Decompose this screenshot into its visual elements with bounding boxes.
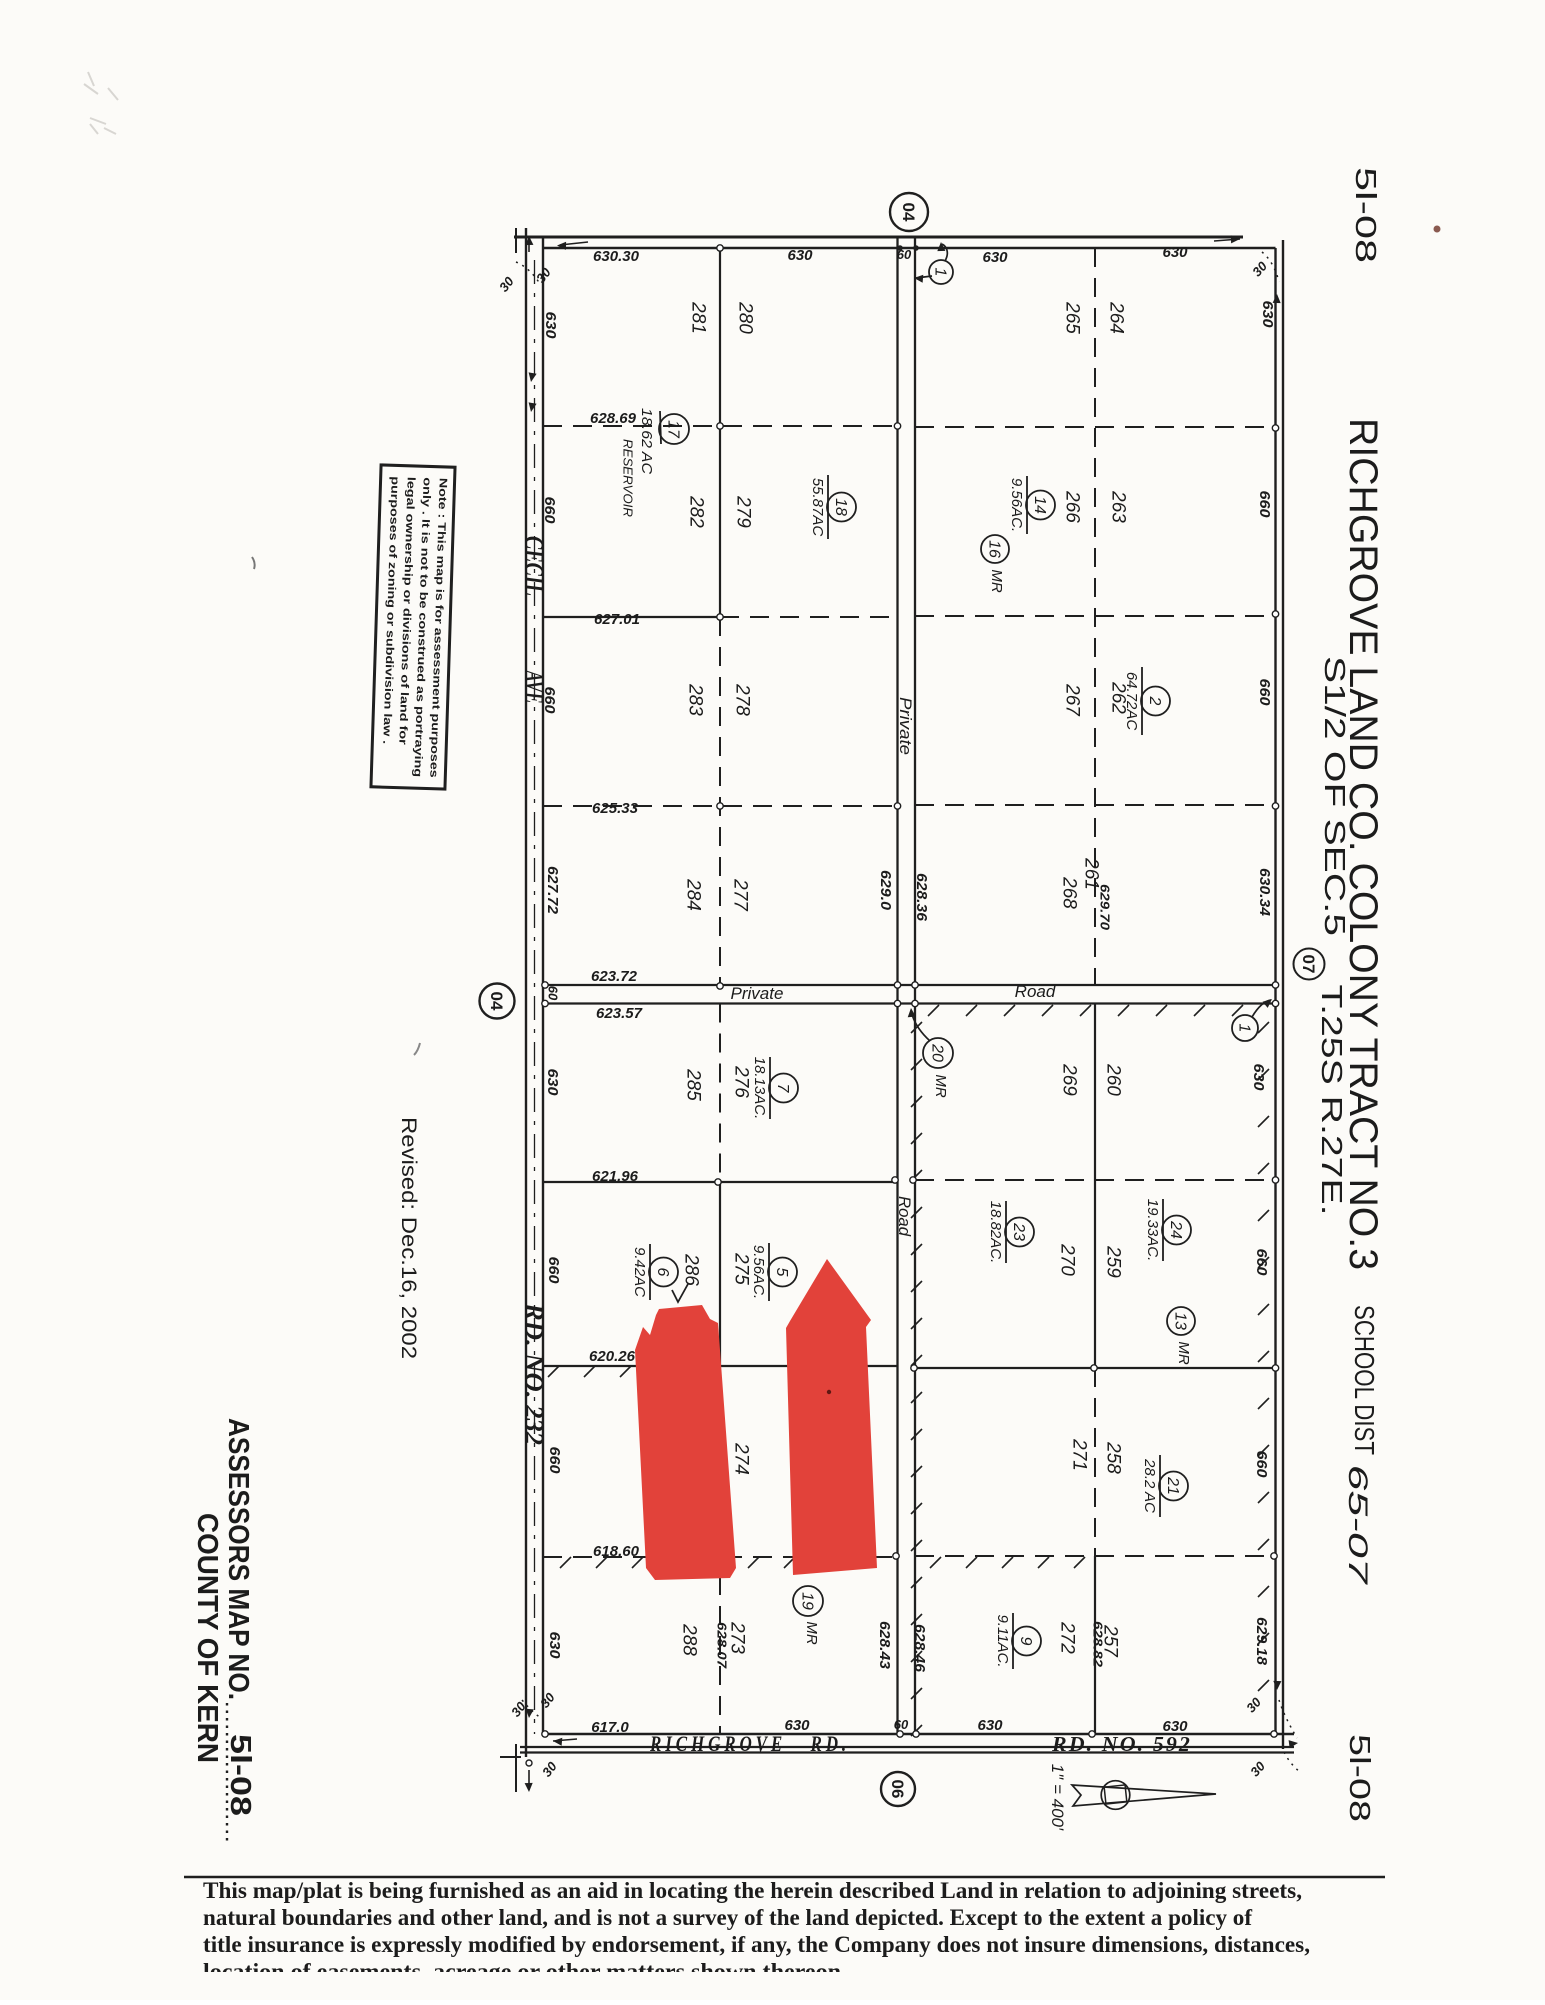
svg-text:265: 265 [1062,301,1083,334]
svg-text:ASSESSORS MAP NO.: ASSESSORS MAP NO. [222,1418,254,1700]
svg-text:269: 269 [1059,1063,1080,1096]
svg-text:264: 264 [1106,301,1127,334]
svg-text:5l-08: 5l-08 [1349,167,1381,263]
svg-text:MR: MR [932,1074,949,1097]
svg-text:627.01: 627.01 [594,611,640,628]
svg-text:660: 660 [1256,679,1273,707]
svg-text:19.33AC.: 19.33AC. [1144,1199,1161,1262]
svg-text:9.11AC.: 9.11AC. [994,1614,1011,1667]
svg-text:COUNTY OF KERN: COUNTY OF KERN [191,1513,223,1763]
svg-text:617.0: 617.0 [591,1719,629,1736]
svg-text:629.70: 629.70 [1098,884,1113,931]
svg-text:19: 19 [799,1592,816,1610]
svg-text:630: 630 [1250,1064,1267,1092]
svg-text:64.72AC: 64.72AC [1123,672,1140,731]
svg-text:9.56AC.: 9.56AC. [750,1245,767,1299]
svg-text:628.07: 628.07 [715,1622,730,1669]
svg-text:MR: MR [988,569,1005,592]
svg-text:This map/plat is being furnish: This map/plat is being furnished as an a… [203,1878,1302,1903]
svg-text:630: 630 [1162,244,1188,261]
svg-text:04: 04 [487,992,506,1011]
svg-text:283: 283 [685,683,706,716]
svg-text:21: 21 [1164,1476,1181,1495]
svg-text:1″ = 400′: 1″ = 400′ [1048,1764,1067,1831]
svg-text:RICHGROVE RD.: RICHGROVE RD. [649,1731,850,1756]
svg-text:272: 272 [1057,1621,1078,1654]
svg-text:628.82: 628.82 [1091,1621,1106,1668]
svg-text:623.57: 623.57 [596,1005,643,1022]
svg-text:5: 5 [773,1268,790,1277]
svg-text:28.2 AC: 28.2 AC [1141,1458,1158,1513]
svg-text:20: 20 [929,1043,946,1062]
svg-text:1: 1 [1236,1024,1253,1033]
svg-text:06: 06 [888,1780,907,1799]
svg-text:260: 260 [1103,1063,1124,1096]
svg-text:13: 13 [1172,1312,1189,1330]
svg-text:630: 630 [977,1717,1003,1734]
svg-text:630: 630 [546,1632,563,1660]
svg-text:07: 07 [1299,955,1318,974]
svg-text:629.0: 629.0 [877,870,894,911]
svg-text:17: 17 [665,420,682,439]
svg-text:627.72: 627.72 [544,866,561,915]
svg-text:6: 6 [654,1268,671,1277]
svg-text:7: 7 [774,1084,791,1094]
svg-text:18.82AC.: 18.82AC. [987,1201,1004,1264]
svg-text:620.26: 620.26 [589,1348,636,1365]
svg-text:266: 266 [1062,490,1083,523]
svg-text:630: 630 [1259,301,1276,329]
svg-text:630.34: 630.34 [1256,868,1273,917]
svg-text:271: 271 [1069,1438,1090,1471]
svg-text:282: 282 [686,495,707,528]
svg-text:RD. NO. 592: RD. NO. 592 [1051,1732,1192,1756]
svg-text:270: 270 [1057,1243,1078,1276]
svg-text:660: 660 [1253,1249,1270,1277]
svg-text:280: 280 [735,301,756,334]
svg-text:natural boundaries and other l: natural boundaries and other land, and i… [203,1905,1252,1930]
svg-text:RD. NO. 232: RD. NO. 232 [520,1302,549,1445]
svg-text:60: 60 [894,1717,909,1732]
svg-text:SCHOOL DIST: SCHOOL DIST [1349,1305,1380,1455]
svg-text:630: 630 [544,1069,561,1097]
svg-text:Revised: Dec.16, 2002: Revised: Dec.16, 2002 [397,1117,420,1359]
svg-text:Road: Road [895,1196,914,1237]
svg-text:628.36: 628.36 [913,873,930,922]
svg-text:1: 1 [932,268,949,277]
svg-text:16: 16 [986,540,1003,558]
svg-text:MR: MR [803,1621,820,1644]
svg-text:5l-08: 5l-08 [1343,1734,1375,1822]
svg-text:268: 268 [1059,876,1080,909]
svg-text:660: 660 [541,497,558,525]
svg-text:660: 660 [1253,1451,1270,1479]
svg-text:278: 278 [732,683,753,716]
svg-text:60: 60 [897,247,912,262]
svg-text:621.96: 621.96 [592,1168,639,1185]
svg-text:MR: MR [1175,1341,1192,1364]
svg-text:Road: Road [1015,982,1056,1001]
svg-text:9: 9 [1017,1637,1034,1646]
svg-text:2: 2 [1146,696,1163,706]
svg-text:CECIL: CECIL [520,536,549,596]
svg-text:23: 23 [1010,1222,1027,1241]
svg-text:630.30: 630.30 [593,248,640,265]
svg-text:628.43: 628.43 [876,1621,893,1670]
svg-text:628.46: 628.46 [911,1624,928,1673]
svg-text:14: 14 [1031,496,1048,514]
svg-text:623.72: 623.72 [591,968,638,985]
svg-text:279: 279 [733,495,754,528]
svg-text:263: 263 [1108,490,1129,523]
svg-text:286: 286 [681,1253,702,1286]
svg-text:RESERVOIR: RESERVOIR [621,439,636,517]
svg-text:60: 60 [546,986,561,1001]
svg-text:276: 276 [731,1065,752,1098]
svg-text:660: 660 [1256,491,1273,519]
svg-text:277: 277 [730,878,751,912]
svg-text:275: 275 [731,1252,752,1285]
svg-text:285: 285 [683,1068,704,1101]
svg-text:660: 660 [545,1257,562,1285]
svg-text:630: 630 [787,247,813,264]
svg-text:274: 274 [731,1442,752,1475]
svg-text:9.56AC.: 9.56AC. [1008,478,1025,532]
svg-text:625.33: 625.33 [592,800,639,817]
svg-text:title insurance is expressly m: title insurance is expressly modified by… [203,1932,1310,1957]
svg-text:AVE: AVE [520,669,549,703]
svg-text:18.62 AC: 18.62 AC [638,408,655,474]
svg-text:T.25S R.27E.: T.25S R.27E. [1315,985,1347,1216]
svg-text:258: 258 [1103,1441,1124,1474]
svg-text:259: 259 [1103,1245,1124,1278]
svg-text:660: 660 [546,1447,563,1475]
svg-text:Private: Private [896,697,915,755]
svg-text:24: 24 [1167,1220,1184,1239]
svg-text:288: 288 [679,1623,700,1656]
svg-text:18.13AC.: 18.13AC. [751,1057,768,1120]
svg-text:618.60: 618.60 [593,1543,640,1560]
svg-text:55.87AC: 55.87AC [809,478,826,537]
svg-text:630: 630 [542,312,559,340]
svg-text:5l-08: 5l-08 [224,1734,256,1816]
svg-text:284: 284 [683,878,704,911]
svg-text:281: 281 [688,301,709,334]
svg-text:65-07: 65-07 [1343,1465,1373,1586]
svg-text:630: 630 [982,249,1008,266]
svg-text:S1/2 OF SEC.5: S1/2 OF SEC.5 [1318,656,1350,936]
svg-text:04: 04 [899,203,918,222]
svg-text:Private: Private [731,984,784,1003]
svg-text:18: 18 [832,498,849,516]
svg-text:628.69: 628.69 [590,410,637,427]
svg-text:267: 267 [1062,683,1083,717]
svg-text:629.18: 629.18 [1253,1617,1270,1666]
svg-text:9.42AC: 9.42AC [631,1247,648,1297]
